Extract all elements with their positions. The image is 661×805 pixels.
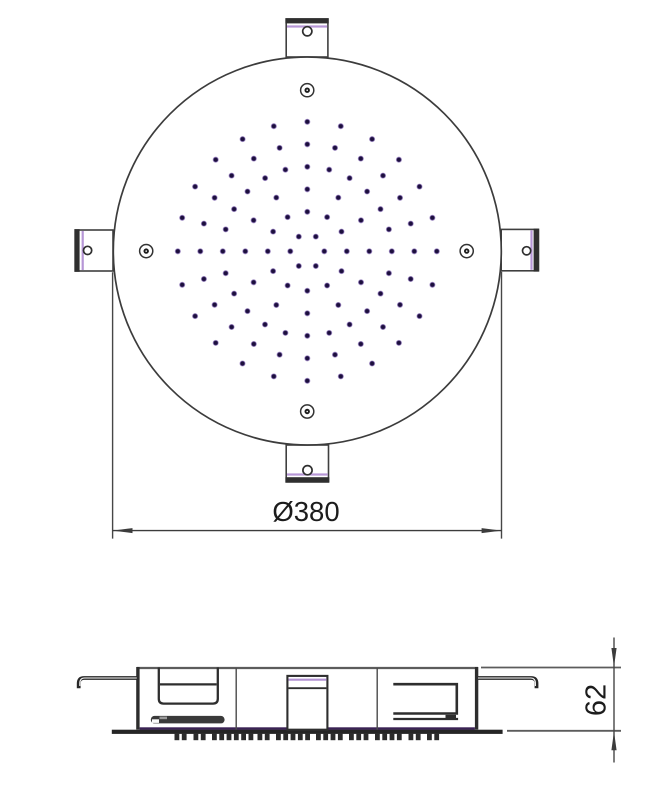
svg-text:62: 62 [581,684,613,716]
svg-text:Ø380: Ø380 [272,496,339,527]
